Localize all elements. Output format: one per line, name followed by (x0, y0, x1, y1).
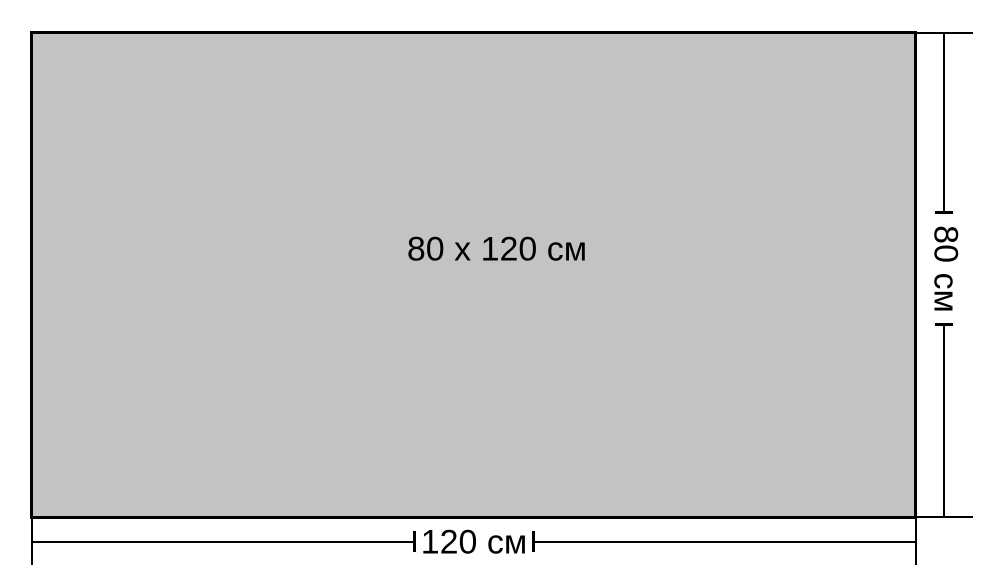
width-tick-left (413, 531, 416, 552)
height-dimension-line-lower (943, 325, 945, 517)
height-extension-line-bottom (917, 516, 973, 518)
width-dimension-line-left (31, 541, 414, 543)
height-extension-line-top (917, 32, 973, 34)
height-dimension-line-upper (943, 32, 945, 213)
height-tick-bottom (935, 323, 953, 326)
panel-rectangle (30, 31, 917, 519)
height-dimension-label: 80 см (926, 225, 963, 313)
height-tick-top (935, 211, 953, 214)
width-dimension-line-right (533, 541, 917, 543)
dimension-diagram: 80 x 120 см 80 см 120 см (0, 0, 1000, 582)
panel-size-label: 80 x 120 см (407, 231, 587, 268)
width-dimension-label: 120 см (421, 524, 528, 561)
width-tick-right (532, 531, 535, 552)
